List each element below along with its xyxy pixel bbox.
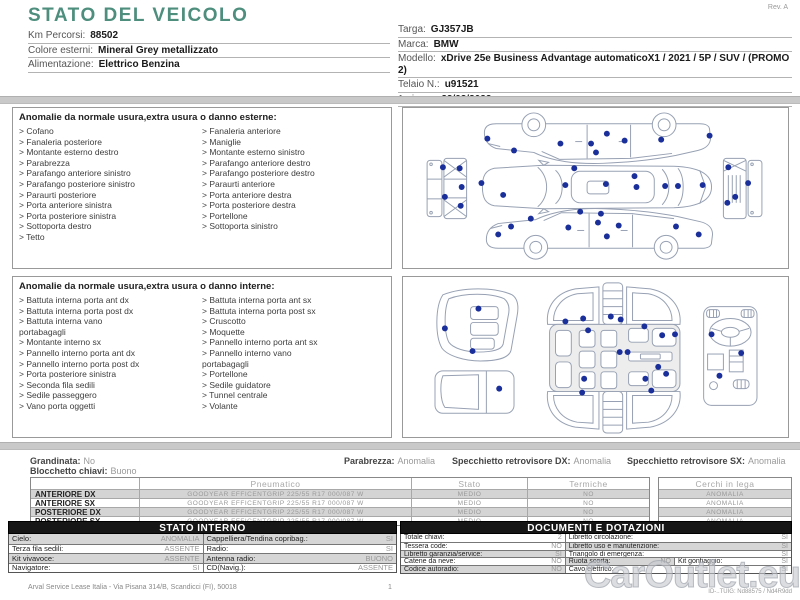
tyre-row: POSTERIORE DXGOODYEAR EFFICENTGRIP 225/5… [31,507,649,516]
status-specchietto-sx: Specchietto retrovisore SX:Anomalia [627,456,786,466]
damage-dot [675,183,681,189]
damage-dot [458,203,464,209]
status-label: Blocchetto chiavi: [30,466,108,476]
field-label: Kit vivavoce: [12,554,54,563]
vehicle-info-right: Targa:GJ357JBMarca:BMWModello:xDrive 25e… [398,23,792,107]
anomaly-item: > Porta posteriore destra [202,200,385,211]
anomaly-item: > Parafango anteriore destro [202,158,385,169]
anomaly-item: > Porta posteriore sinistra [19,369,202,380]
status-parabrezza: Parabrezza:Anomalia [344,456,435,466]
tyre-row: ANTERIORE DXGOODYEAR EFFICENTGRIP 225/55… [31,489,649,498]
damage-dot [658,137,664,143]
field-label: Tessera code: [404,543,448,550]
field-value: ASSENTE [164,545,199,554]
tyre-cell: MEDIO [411,499,527,507]
field-value: SI [781,534,788,541]
damage-dot [500,192,506,198]
info-label: Km Percorsi: [28,30,85,41]
anomaly-item: > Pannello interno porta ant sx [202,337,385,348]
damage-dot [604,131,610,137]
damage-dot [565,225,571,231]
interior-anomalies-title: Anomalie da normale usura,extra usura o … [19,281,385,292]
field-cell: Libretto garanzia/service:SI [401,551,565,558]
damage-dot [662,183,668,189]
field-label: Radio: [207,545,229,554]
field-cell: Libretto uso e manutenzione:SI [565,543,791,550]
column-header: Pneumatico [139,478,411,489]
anomaly-item: > Battuta interna porta post dx [19,306,202,317]
anomaly-item: > Tunnel centrale [202,390,385,401]
field-label: Totale chiavi: [404,534,444,541]
info-value: Elettrico Benzina [99,59,180,70]
tyre-cell: ANTERIORE SX [31,499,139,507]
anomaly-item: > Battuta interna porta post sx [202,306,385,317]
field-label: Antenna radio: [207,554,256,563]
anomaly-item: > Vano porta oggetti [19,401,202,412]
damage-dot [593,149,599,155]
info-row: Targa:GJ357JB [398,23,792,38]
damage-dot [732,194,738,200]
field-cell: Kit gonfiaggio:SI [674,558,791,565]
field-cell: Totale chiavi:2 [401,534,565,542]
interior-anomalies-col1: > Battuta interna porta ant dx> Battuta … [19,295,202,412]
field-cell: Cielo:ANOMALIA [9,534,203,544]
field-cell: Catene da neve:NO [401,558,565,565]
anomaly-item: > Pannello interno porta post dx [19,359,202,370]
anomaly-item: > Sedile passeggero [19,390,202,401]
damage-dot [508,224,514,230]
anomaly-item: > Cofano [19,126,202,137]
status-blocchetto-chiavi: Blocchetto chiavi:Buono [30,466,137,476]
field-value: SI [386,545,393,554]
field-value: BUONO [365,554,393,563]
field-cell: Antenna radio:BUONO [203,554,397,563]
footer-page-number: 1 [388,584,392,591]
table-row: Totale chiavi:2Libretto circolazione:SI [401,534,791,542]
status-grandinata: Grandinata:No [30,456,95,466]
info-value: BMW [434,39,459,50]
damage-dot [716,373,722,379]
field-label: Kit gonfiaggio: [678,558,722,565]
wheels-cell: ANOMALIA [659,508,791,516]
exterior-diagram-box [402,107,789,269]
damage-dot [528,216,534,222]
wheels-row: ANOMALIA [659,489,791,498]
info-label: Marca: [398,39,429,50]
anomaly-item: > Porta anteriore sinistra [19,200,202,211]
anomaly-item: > Volante [202,401,385,412]
field-cell: Triangolo di emergenza:SI [565,551,791,558]
damage-dot [562,318,568,324]
status-label: Grandinata: [30,456,81,466]
field-value: SI [555,551,562,558]
damage-dot [442,194,448,200]
damage-dot [724,200,730,206]
column-header [31,478,139,489]
interior-anomalies-box: Anomalie da normale usura,extra usura o … [12,276,392,438]
interior-state-header: STATO INTERNO [8,521,397,534]
field-label: Ruota scorta: [569,558,611,565]
damage-dot [642,376,648,382]
damage-dot [709,331,715,337]
damage-dot [738,350,744,356]
field-value: NO [660,558,671,565]
field-cell: Tessera code:NO [401,543,565,550]
vehicle-info-left: Km Percorsi:88502Colore esterni:Mineral … [28,29,390,73]
vehicle-condition-report: STATO DEL VEICOLO Rev. A Km Percorsi:885… [0,0,800,600]
field-label: Cielo: [12,534,31,543]
info-value: 88502 [90,30,118,41]
revision-label: Rev. A [768,4,788,11]
damage-dot [632,173,638,179]
damage-dot [617,349,623,355]
anomaly-item: > Portellone [202,369,385,380]
status-label: Parabrezza: [344,456,395,466]
anomaly-item: > Seconda fila sedili [19,380,202,391]
damage-dot [672,331,678,337]
interior-state-table: STATO INTERNO Cielo:ANOMALIACappelliera/… [8,521,397,573]
field-value: 2 [558,534,562,541]
damage-dot [442,325,448,331]
field-cell: Libretto circolazione:SI [565,534,791,542]
interior-anomalies-list: > Battuta interna porta ant dx> Battuta … [19,295,385,412]
table-row: Catene da neve:NORuota scorta:NOKit gonf… [401,557,791,565]
documents-equipment-rows: Totale chiavi:2Libretto circolazione:SIT… [400,534,792,574]
field-cell: Ruota scorta:NO [565,558,674,565]
anomaly-item: > Parafango posteriore sinistro [19,179,202,190]
damage-dot [622,138,628,144]
damage-dot [648,388,654,394]
field-value: SI [781,566,788,573]
anomaly-item: > Porta posteriore sinistra [19,211,202,222]
info-label: Colore esterni: [28,45,93,56]
status-label: Specchietto retrovisore SX: [627,456,745,466]
damage-dot [603,181,609,187]
field-label: Terza fila sedili: [12,545,63,554]
field-value: SI [781,551,788,558]
damage-dot [659,332,665,338]
damage-dot [478,180,484,186]
damage-dot [580,316,586,322]
field-value: NO [551,566,562,573]
anomaly-item: > Sedile guidatore [202,380,385,391]
field-cell: Cavo elettrico:SI [565,566,791,573]
interior-anomalies-col2: > Battuta interna porta ant sx> Battuta … [202,295,385,412]
field-label: Cavo elettrico: [569,566,614,573]
documents-equipment-table: DOCUMENTI E DOTAZIONI Totale chiavi:2Lib… [400,521,792,574]
field-label: Libretto garanzia/service: [404,551,482,558]
damage-dot [595,220,601,226]
table-row: Tessera code:NOLibretto uso e manutenzio… [401,542,791,550]
tyre-cell: GOODYEAR EFFICENTGRIP 225/55 R17 000/087… [139,499,411,507]
tyre-cell: NO [527,499,649,507]
info-label: Telaio N.: [398,79,440,90]
field-value: SI [192,564,199,573]
damage-dot [673,224,679,230]
field-label: Libretto uso e manutenzione: [569,543,659,550]
anomaly-item: > Battuta interna vano portabagagli [19,316,202,337]
field-label: Codice autoradio: [404,566,459,573]
column-header: Stato [411,478,527,489]
info-row: Colore esterni:Mineral Grey metallizzato [28,44,390,59]
anomaly-item: > Battuta interna porta ant dx [19,295,202,306]
tyre-cell: NO [527,508,649,516]
info-label: Alimentazione: [28,59,94,70]
anomaly-item: > Fanaleria anteriore [202,126,385,137]
info-row: Alimentazione:Elettrico Benzina [28,58,390,73]
status-value: Anomalia [574,456,612,466]
field-value: ASSENTE [358,564,393,573]
damage-dot [588,141,594,147]
anomaly-item: > Parabrezza [19,158,202,169]
field-label: Navigatore: [12,564,50,573]
anomaly-item: > Tetto [19,232,202,243]
damage-dot [663,371,669,377]
status-value: Anomalia [398,456,436,466]
field-cell: Kit vivavoce:ASSENTE [9,554,203,563]
tyre-cell: POSTERIORE DX [31,508,139,516]
interior-state-rows: Cielo:ANOMALIACappelliera/Tendina coprib… [8,534,397,573]
page-title: STATO DEL VEICOLO [28,5,248,27]
status-value: Buono [111,466,137,476]
report-id-text: ID-..TUIG: Nd88575 / Nd4R9dd [708,589,792,595]
field-value: NO [551,558,562,565]
field-cell: CD(Navig.):ASSENTE [203,564,397,573]
status-value: Anomalia [748,456,786,466]
field-cell: Terza fila sedili:ASSENTE [9,545,203,554]
exterior-anomalies-list: > Cofano> Fanaleria posteriore> Montante… [19,126,385,243]
damage-dot [476,306,482,312]
damage-dot [496,386,502,392]
damage-dot [604,233,610,239]
damage-dot [598,211,604,217]
wheels-table: Cerchi in legaANOMALIAANOMALIAANOMALIAAN… [658,477,792,526]
field-label: Cappelliera/Tendina copribag.: [207,534,308,543]
info-label: Modello: [398,53,436,64]
info-value: xDrive 25e Business Advantage automatico… [398,53,789,76]
anomaly-item: > Montante interno sx [19,337,202,348]
damage-dot [484,136,490,142]
damage-dot [440,164,446,170]
damage-dot [700,182,706,188]
field-value: SI [781,543,788,550]
field-cell: Radio:SI [203,545,397,554]
info-value: GJ357JB [431,24,474,35]
damage-dot [459,184,465,190]
column-header: Cerchi in lega [659,478,791,489]
table-row: Navigatore:SICD(Navig.):ASSENTE [9,563,396,573]
damage-dot [618,317,624,323]
field-value: ASSENTE [164,554,199,563]
tyre-cell: MEDIO [411,490,527,498]
divider-bar [0,96,800,104]
info-label: Targa: [398,24,426,35]
damage-dot [696,231,702,237]
info-value: u91521 [445,79,479,90]
field-value: ANOMALIA [161,534,200,543]
anomaly-item: > Sottoporta sinistro [202,221,385,232]
tyre-cell: MEDIO [411,508,527,516]
damage-dot [571,165,577,171]
field-value: NO [551,543,562,550]
anomaly-item: > Cruscotto [202,316,385,327]
tyre-cell: GOODYEAR EFFICENTGRIP 225/55 R17 000/087… [139,508,411,516]
footer-company-address: Arval Service Lease Italia - Via Pisana … [28,584,237,591]
field-cell: Cappelliera/Tendina copribag.:SI [203,534,397,544]
anomaly-item: > Moquette [202,327,385,338]
info-row: Modello:xDrive 25e Business Advantage au… [398,52,792,78]
status-label: Specchietto retrovisore DX: [452,456,571,466]
wheels-row: ANOMALIA [659,498,791,507]
anomaly-item: > Pannello interno porta ant dx [19,348,202,359]
exterior-anomalies-col2: > Fanaleria anteriore> Maniglie> Montant… [202,126,385,243]
field-label: CD(Navig.): [207,564,246,573]
damage-dot [495,231,501,237]
table-row: Cielo:ANOMALIACappelliera/Tendina coprib… [9,534,396,544]
exterior-anomalies-box: Anomalie da normale usura,extra usura o … [12,107,392,269]
info-row: Telaio N.:u91521 [398,78,792,93]
field-label: Libretto circolazione: [569,534,633,541]
exterior-car-diagram [403,108,788,268]
field-value: SI [386,534,393,543]
anomaly-item: > Maniglie [202,137,385,148]
damage-dot [745,180,751,186]
damage-dot [655,364,661,370]
damage-dot [577,209,583,215]
anomaly-item: > Parafango posteriore destro [202,168,385,179]
anomaly-item: > Pannello interno vano portabagagli [202,348,385,369]
table-row: Terza fila sedili:ASSENTERadio:SI [9,544,396,554]
tyres-table: PneumaticoStatoTermicheANTERIORE DXGOODY… [30,477,650,526]
damage-dot [511,148,517,154]
damage-dot [470,348,476,354]
anomaly-item: > Sottoporta destro [19,221,202,232]
wheels-cell: ANOMALIA [659,490,791,498]
info-value: Mineral Grey metallizzato [98,45,218,56]
damage-dot [457,165,463,171]
info-row: Marca:BMW [398,38,792,53]
tyre-row: ANTERIORE SXGOODYEAR EFFICENTGRIP 225/55… [31,498,649,507]
damage-dot [707,133,713,139]
damage-dot [725,164,731,170]
tyre-cell: ANTERIORE DX [31,490,139,498]
wheels-cell: ANOMALIA [659,499,791,507]
interior-car-diagram [403,277,788,437]
field-cell: Navigatore:SI [9,564,203,573]
damage-dot [581,376,587,382]
status-specchietto-dx: Specchietto retrovisore DX:Anomalia [452,456,611,466]
wheels-header-row: Cerchi in lega [659,478,791,489]
anomaly-item: > Porta anteriore destra [202,190,385,201]
damage-dot [625,349,631,355]
wheels-row: ANOMALIA [659,507,791,516]
field-value: SI [781,558,788,565]
table-row: Kit vivavoce:ASSENTEAntenna radio:BUONO [9,553,396,563]
damage-dot [634,184,640,190]
anomaly-item: > Portellone [202,211,385,222]
interior-outline-views [435,283,757,433]
damage-dot [562,182,568,188]
tyre-cell: GOODYEAR EFFICENTGRIP 225/55 R17 000/087… [139,490,411,498]
damage-dot [641,323,647,329]
status-value: No [84,456,96,466]
info-row: Km Percorsi:88502 [28,29,390,44]
anomaly-item: > Montante esterno sinistro [202,147,385,158]
damage-dot [616,223,622,229]
damage-dot [557,141,563,147]
field-label: Catene da neve: [404,558,455,565]
anomaly-item: > Parafango anteriore sinistro [19,168,202,179]
damage-dot [608,314,614,320]
anomaly-item: > Fanaleria posteriore [19,137,202,148]
damage-dot [579,390,585,396]
tyre-cell: NO [527,490,649,498]
divider-bar [0,442,800,450]
anomaly-item: > Paraurti posteriore [19,190,202,201]
damage-dot [585,327,591,333]
anomaly-item: > Battuta interna porta ant sx [202,295,385,306]
table-row: Codice autoradio:NOCavo elettrico:SI [401,565,791,573]
table-row: Libretto garanzia/service:SITriangolo di… [401,550,791,558]
documents-equipment-header: DOCUMENTI E DOTAZIONI [400,521,792,534]
exterior-anomalies-col1: > Cofano> Fanaleria posteriore> Montante… [19,126,202,243]
exterior-anomalies-title: Anomalie da normale usura,extra usura o … [19,112,385,123]
interior-diagram-box [402,276,789,438]
anomaly-item: > Paraurti anteriore [202,179,385,190]
anomaly-item: > Montante esterno destro [19,147,202,158]
column-header: Termiche [527,478,649,489]
tyre-header-row: PneumaticoStatoTermiche [31,478,649,489]
field-cell: Codice autoradio:NO [401,566,565,573]
field-label: Triangolo di emergenza: [569,551,644,558]
